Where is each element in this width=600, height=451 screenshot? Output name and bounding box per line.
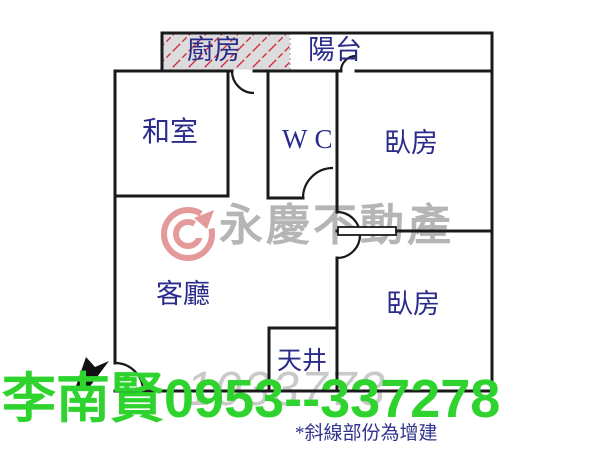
room-label-kitchen: 廚房: [187, 37, 241, 64]
floorplan-image: 永慶不動產 1033773: [0, 0, 600, 451]
room-label-living-room: 客廳: [156, 281, 210, 308]
room-label-balcony: 陽台: [308, 37, 362, 64]
room-label-wc: WC: [282, 126, 340, 153]
room-labels-layer: 廚房 陽台 和室 WC 臥房 客廳 天井 臥房: [0, 0, 600, 451]
room-label-bedroom-top: 臥房: [384, 130, 438, 157]
room-label-tatami-room: 和室: [142, 119, 198, 147]
room-label-bedroom-bottom: 臥房: [386, 291, 440, 318]
room-label-light-well: 天井: [277, 349, 327, 374]
